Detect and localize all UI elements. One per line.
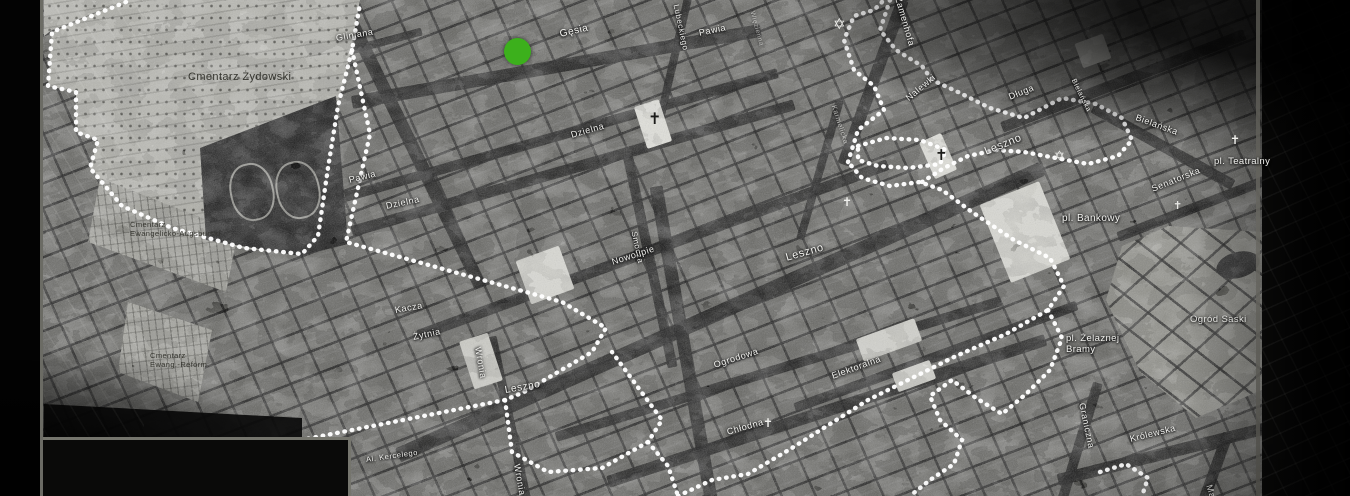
inset-panel [43, 437, 351, 496]
green-location-marker[interactable] [504, 38, 531, 65]
map-frame-line [40, 0, 43, 496]
map-viewport[interactable]: GlinianaGęsiaLubeckiegoPawiaZamenhofaWię… [0, 0, 1350, 496]
right-page-area [1262, 0, 1350, 496]
page-fold-line [1256, 0, 1260, 496]
left-page-margin [0, 0, 41, 496]
